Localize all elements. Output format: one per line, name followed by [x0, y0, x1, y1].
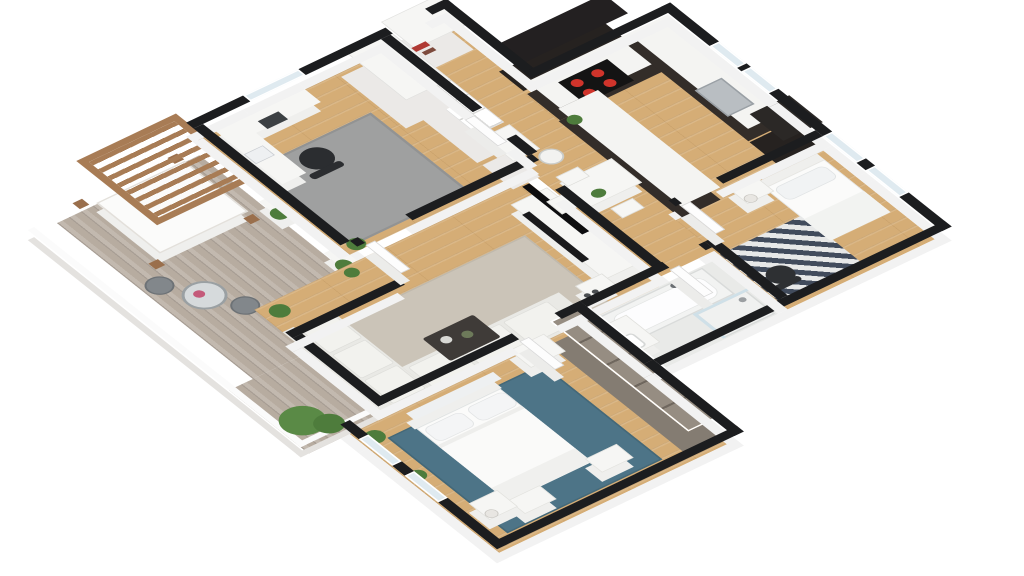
isometric-plan [0, 0, 1024, 576]
floor-plan-3d [0, 0, 1024, 576]
